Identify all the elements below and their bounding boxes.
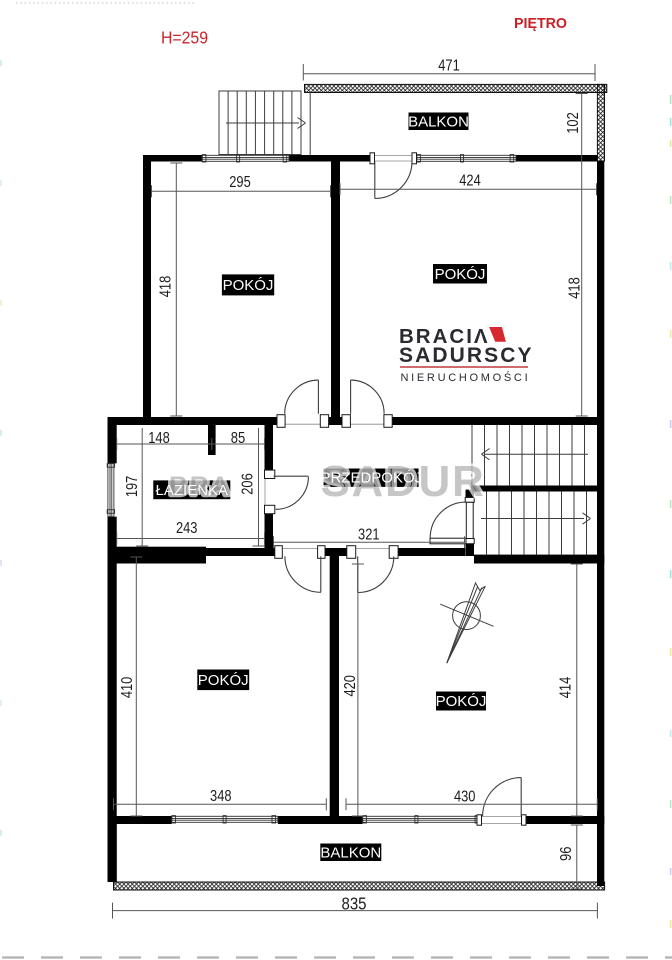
svg-text:PRZEDPOKÓJ: PRZEDPOKÓJ — [320, 470, 422, 487]
svg-text:96: 96 — [558, 846, 575, 861]
svg-text:BALKON: BALKON — [408, 113, 469, 130]
svg-text:348: 348 — [210, 788, 232, 805]
svg-text:102: 102 — [565, 112, 582, 134]
svg-text:430: 430 — [454, 789, 476, 806]
svg-text:414: 414 — [558, 677, 575, 699]
svg-text:POKÓJ: POKÓJ — [223, 277, 274, 294]
svg-text:NIERUCHOMOŚCI: NIERUCHOMOŚCI — [401, 371, 531, 384]
svg-text:197: 197 — [124, 476, 141, 498]
svg-text:206: 206 — [240, 473, 257, 495]
svg-text:835: 835 — [342, 894, 367, 914]
svg-text:ŁAZIENKA: ŁAZIENKA — [156, 482, 229, 499]
svg-text:321: 321 — [358, 527, 380, 544]
svg-text:PIĘTRO: PIĘTRO — [514, 15, 567, 32]
svg-text:85: 85 — [231, 430, 246, 447]
svg-text:420: 420 — [342, 675, 359, 697]
svg-text:424: 424 — [459, 173, 481, 190]
svg-text:POKÓJ: POKÓJ — [436, 693, 487, 710]
svg-text:POKÓJ: POKÓJ — [198, 672, 249, 689]
svg-text:295: 295 — [229, 174, 251, 191]
svg-text:418: 418 — [158, 276, 175, 298]
svg-text:POKÓJ: POKÓJ — [435, 266, 486, 283]
svg-text:148: 148 — [148, 430, 170, 447]
svg-text:SADURSCY: SADURSCY — [399, 344, 534, 367]
svg-text:410: 410 — [119, 677, 136, 699]
svg-text:243: 243 — [176, 520, 198, 537]
svg-text:H=259: H=259 — [161, 28, 208, 48]
svg-text:418: 418 — [567, 277, 584, 299]
svg-text:BALKON: BALKON — [320, 844, 381, 861]
svg-text:471: 471 — [438, 58, 460, 75]
